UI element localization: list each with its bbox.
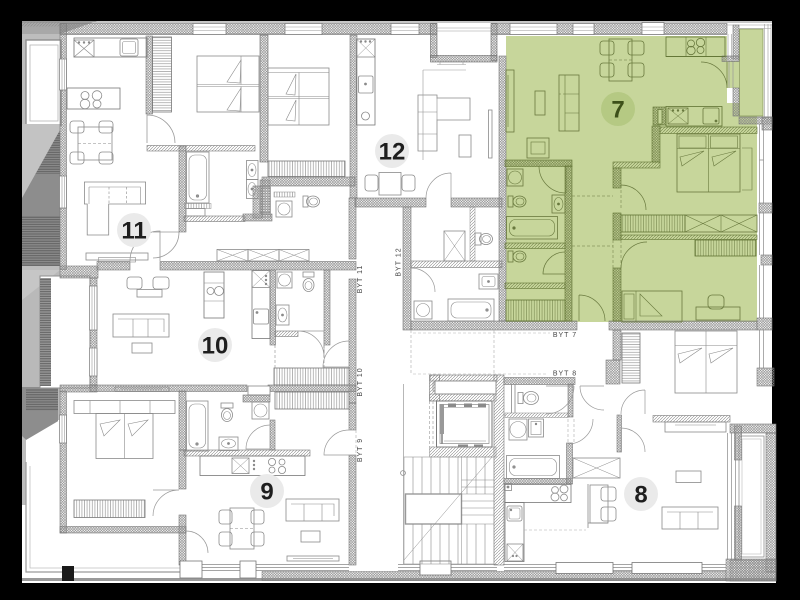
svg-text:12: 12 bbox=[379, 139, 406, 166]
svg-text:10: 10 bbox=[202, 333, 229, 360]
svg-text:BYT 7: BYT 7 bbox=[553, 332, 577, 339]
svg-text:7: 7 bbox=[611, 97, 624, 124]
svg-text:9: 9 bbox=[260, 479, 273, 506]
svg-text:8: 8 bbox=[634, 482, 647, 509]
svg-text:11: 11 bbox=[121, 218, 146, 245]
svg-text:BYT 9: BYT 9 bbox=[357, 438, 364, 462]
svg-text:BYT 8: BYT 8 bbox=[553, 371, 577, 378]
svg-text:BYT 12: BYT 12 bbox=[396, 247, 403, 276]
svg-text:BYT 11: BYT 11 bbox=[357, 265, 364, 294]
svg-text:BYT 10: BYT 10 bbox=[357, 367, 364, 396]
